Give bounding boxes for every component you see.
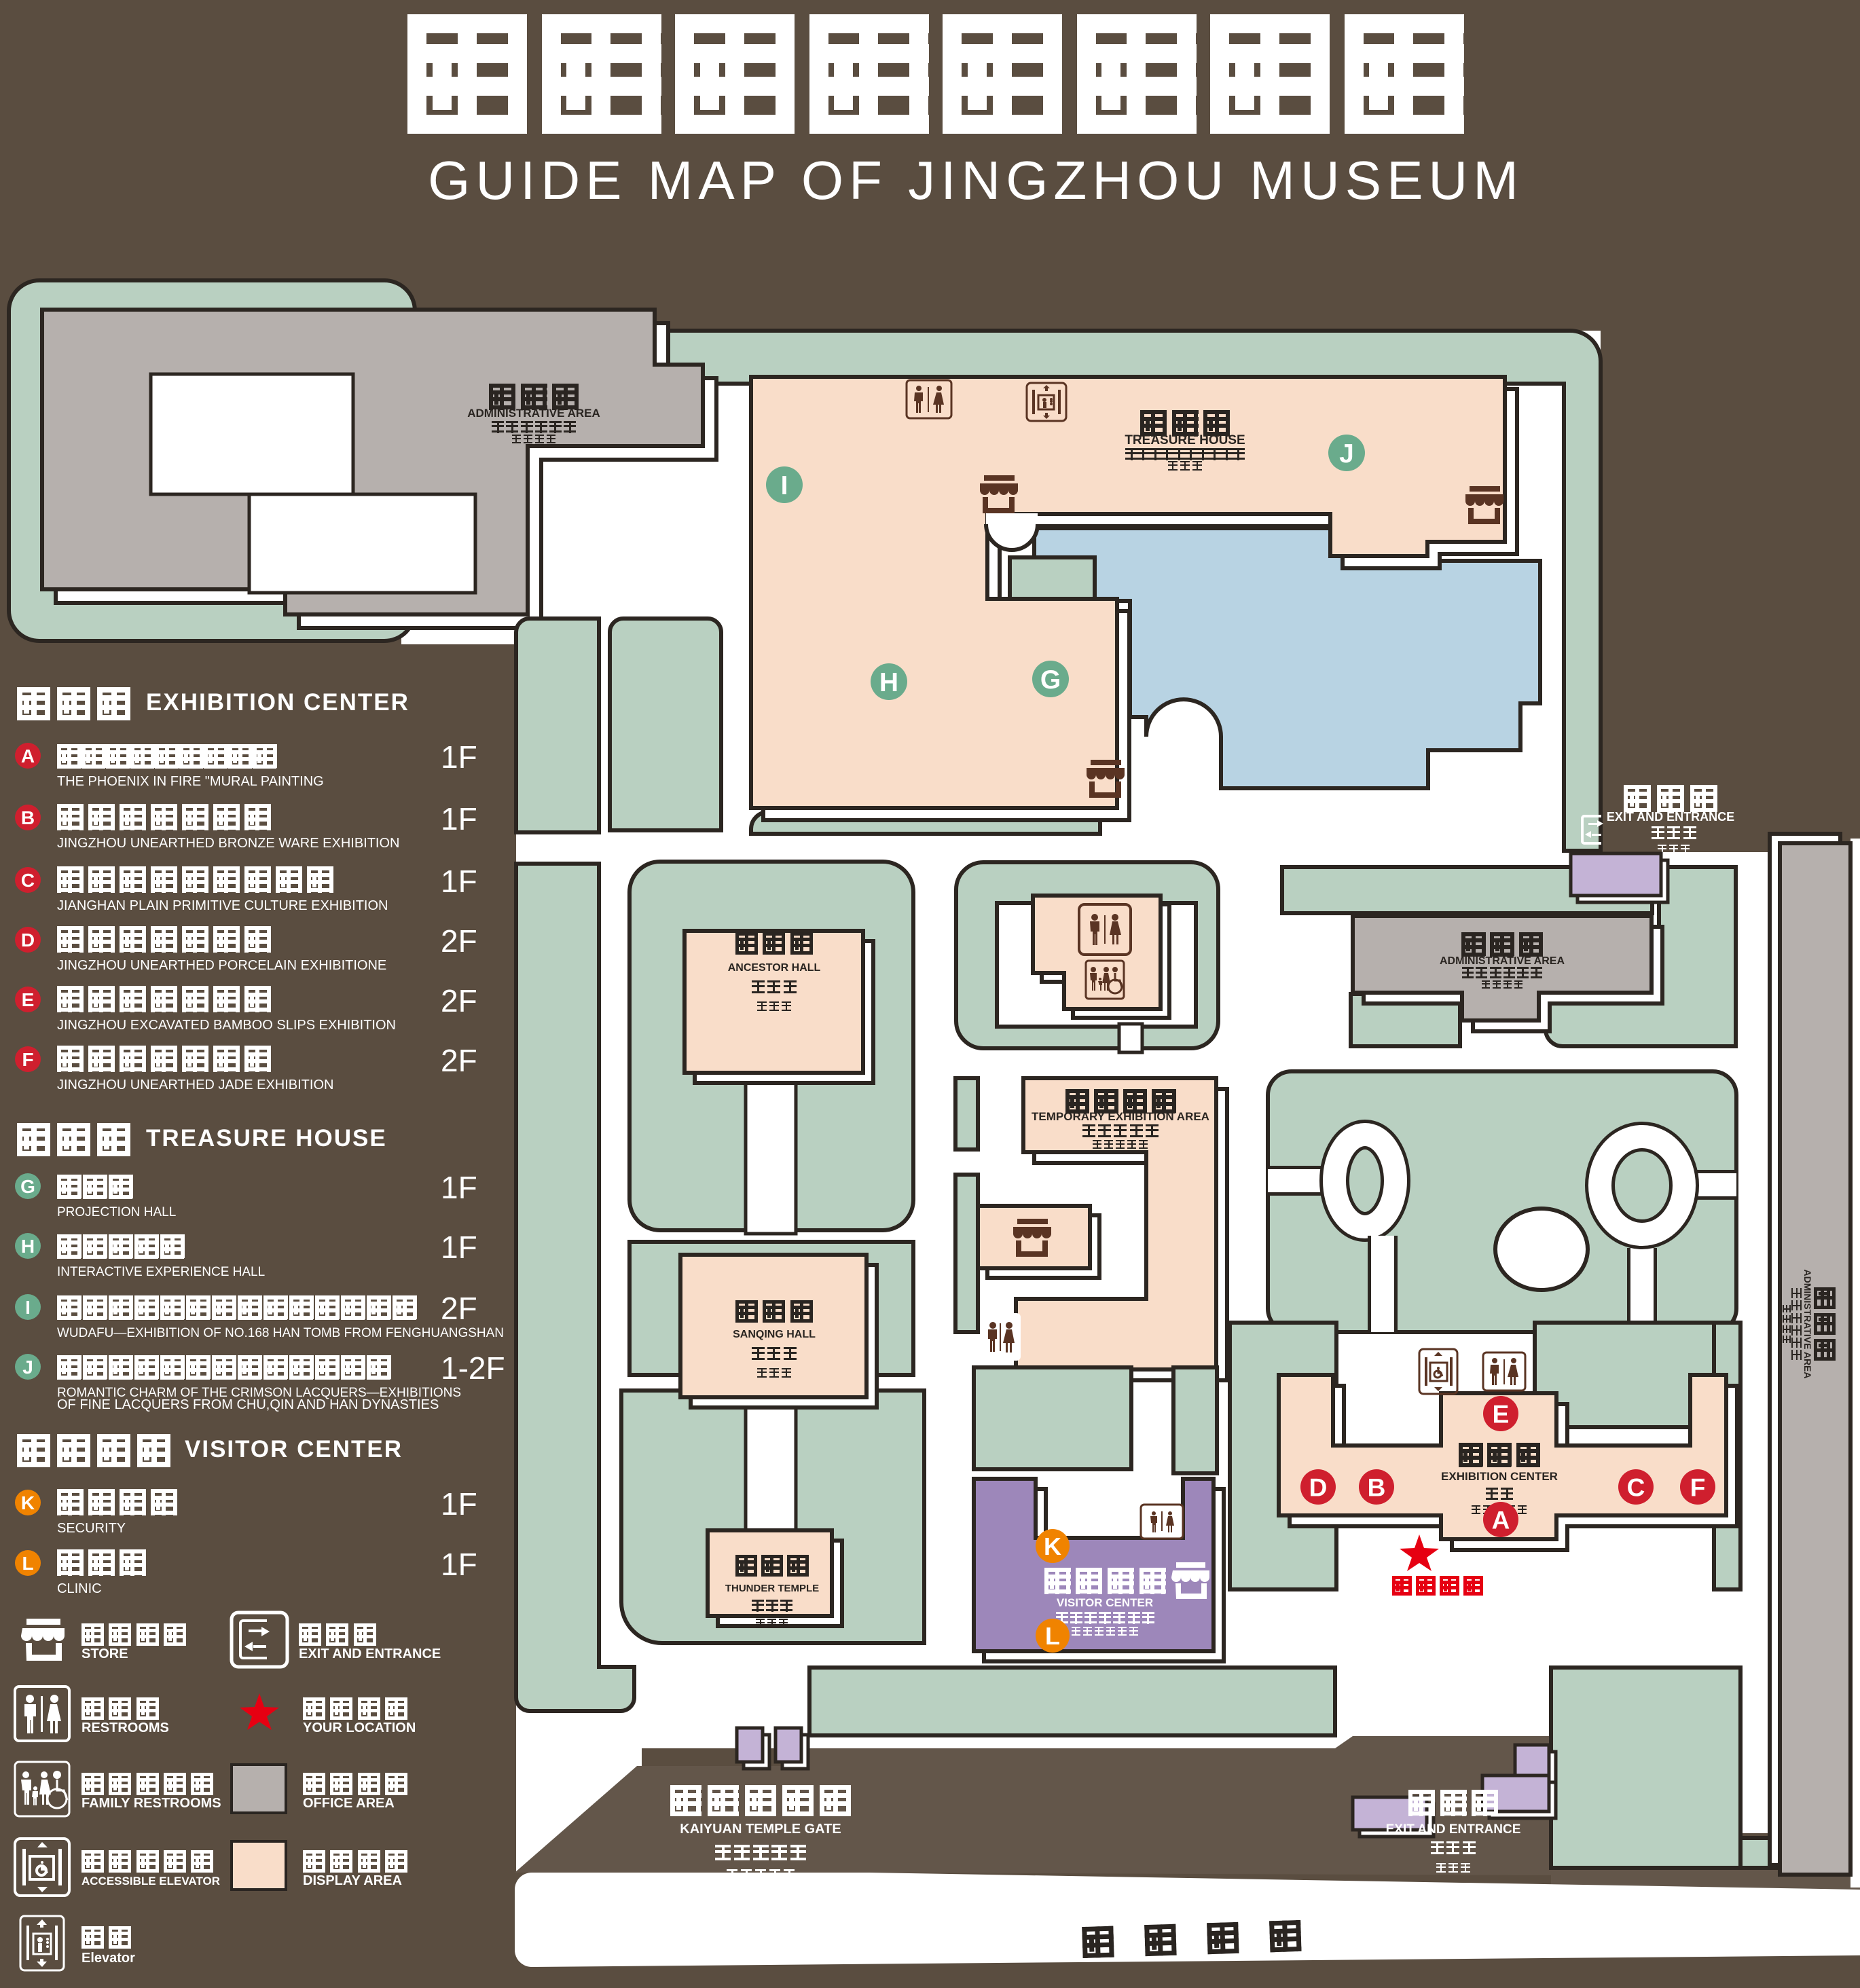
- svg-text:EXIT AND ENTRANCE: EXIT AND ENTRANCE: [1386, 1822, 1521, 1837]
- svg-text:2F: 2F: [441, 1291, 477, 1326]
- svg-text:SECURITY: SECURITY: [57, 1521, 126, 1536]
- svg-text:EXHIBITION CENTER: EXHIBITION CENTER: [146, 689, 409, 716]
- svg-text:JINGZHOU UNEARTHED JADE EXHIBI: JINGZHOU UNEARTHED JADE EXHIBITION: [57, 1078, 333, 1092]
- svg-text:JINGZHOU EXCAVATED BAMBOO SLIP: JINGZHOU EXCAVATED BAMBOO SLIPS EXHIBITI…: [57, 1018, 396, 1033]
- svg-text:C: C: [1627, 1473, 1645, 1501]
- svg-text:H: H: [879, 668, 898, 697]
- svg-text:1F: 1F: [441, 1486, 477, 1522]
- svg-text:G: G: [1040, 665, 1061, 695]
- svg-text:WUDAFU—EXHIBITION OF NO.168 HA: WUDAFU—EXHIBITION OF NO.168 HAN TOMB FRO…: [57, 1326, 504, 1340]
- svg-text:THUNDER TEMPLE: THUNDER TEMPLE: [725, 1583, 819, 1594]
- svg-text:CLINIC: CLINIC: [57, 1581, 102, 1596]
- svg-text:I: I: [781, 471, 788, 500]
- svg-text:GUIDE MAP OF JINGZHOU MUSEUM: GUIDE MAP OF JINGZHOU MUSEUM: [428, 150, 1524, 210]
- svg-text:ADMINISTRATIVE AREA: ADMINISTRATIVE AREA: [467, 407, 600, 420]
- svg-text:OF FINE LACQUERS FROM CHU,QIN: OF FINE LACQUERS FROM CHU,QIN AND HAN DY…: [57, 1397, 439, 1412]
- svg-text:JINGZHOU UNEARTHED BRONZE WARE: JINGZHOU UNEARTHED BRONZE WARE EXHIBITIO…: [57, 836, 399, 851]
- svg-text:G: G: [20, 1176, 35, 1197]
- svg-text:I: I: [25, 1297, 31, 1318]
- svg-text:FAMILY RESTROOMS: FAMILY RESTROOMS: [81, 1796, 221, 1811]
- svg-text:JIANGHAN PLAIN PRIMITIVE CULTU: JIANGHAN PLAIN PRIMITIVE CULTURE EXHIBIT…: [57, 898, 388, 913]
- svg-text:D: D: [21, 929, 35, 951]
- svg-text:ADMINISTRATIVE AREA: ADMINISTRATIVE AREA: [1802, 1270, 1813, 1379]
- svg-text:ACCESSIBLE ELEVATOR: ACCESSIBLE ELEVATOR: [81, 1875, 220, 1888]
- svg-text:A: A: [21, 745, 35, 767]
- svg-text:EXHIBITION CENTER: EXHIBITION CENTER: [1441, 1470, 1558, 1483]
- svg-text:EXIT AND ENTRANCE: EXIT AND ENTRANCE: [1607, 810, 1734, 824]
- svg-text:E: E: [22, 989, 35, 1010]
- svg-text:VISITOR CENTER: VISITOR CENTER: [1057, 1596, 1153, 1609]
- svg-text:JINGZHOU UNEARTHED PORCELAIN E: JINGZHOU UNEARTHED PORCELAIN EXHIBITIONE: [57, 958, 386, 973]
- svg-text:2F: 2F: [441, 923, 477, 959]
- svg-text:KAIYUAN TEMPLE GATE: KAIYUAN TEMPLE GATE: [680, 1822, 841, 1837]
- svg-text:1F: 1F: [441, 1170, 477, 1205]
- svg-text:2F: 2F: [441, 983, 477, 1018]
- svg-text:STORE: STORE: [81, 1646, 128, 1661]
- svg-text:B: B: [1368, 1473, 1386, 1501]
- svg-text:VISITOR CENTER: VISITOR CENTER: [185, 1436, 403, 1462]
- svg-text:TREASURE HOUSE: TREASURE HOUSE: [1125, 433, 1245, 447]
- svg-text:RESTROOMS: RESTROOMS: [81, 1720, 169, 1735]
- svg-text:1-2F: 1-2F: [441, 1350, 505, 1386]
- svg-text:J: J: [22, 1357, 33, 1378]
- svg-text:PROJECTION HALL: PROJECTION HALL: [57, 1205, 176, 1219]
- svg-text:1F: 1F: [441, 739, 477, 775]
- svg-text:Elevator: Elevator: [81, 1951, 135, 1966]
- svg-text:1F: 1F: [441, 801, 477, 836]
- svg-text:YOUR LOCATION: YOUR LOCATION: [303, 1720, 416, 1735]
- svg-text:L: L: [22, 1553, 33, 1574]
- svg-text:A: A: [1492, 1506, 1510, 1534]
- svg-text:EXIT AND ENTRANCE: EXIT AND ENTRANCE: [299, 1646, 441, 1661]
- svg-text:1F: 1F: [441, 864, 477, 899]
- svg-text:SANQING HALL: SANQING HALL: [733, 1329, 816, 1340]
- svg-text:F: F: [1690, 1473, 1706, 1501]
- svg-text:OFFICE AREA: OFFICE AREA: [303, 1796, 395, 1811]
- svg-text:E: E: [1493, 1400, 1510, 1428]
- svg-text:K: K: [1044, 1532, 1061, 1560]
- svg-text:ADMINISTRATIVE AREA: ADMINISTRATIVE AREA: [1440, 955, 1565, 967]
- svg-text:1F: 1F: [441, 1230, 477, 1265]
- svg-text:L: L: [1045, 1622, 1060, 1650]
- svg-text:C: C: [21, 870, 35, 891]
- svg-text:2F: 2F: [441, 1043, 477, 1078]
- svg-text:DISPLAY AREA: DISPLAY AREA: [303, 1873, 402, 1888]
- svg-text:H: H: [21, 1236, 35, 1257]
- svg-text:B: B: [21, 807, 35, 828]
- svg-text:TEMPORARY EXHIBITION AREA: TEMPORARY EXHIBITION AREA: [1032, 1110, 1209, 1123]
- svg-text:F: F: [22, 1049, 33, 1070]
- svg-text:1F: 1F: [441, 1547, 477, 1582]
- svg-text:D: D: [1309, 1473, 1328, 1501]
- svg-text:TREASURE HOUSE: TREASURE HOUSE: [146, 1125, 387, 1152]
- svg-text:INTERACTIVE EXPERIENCE HALL: INTERACTIVE EXPERIENCE HALL: [57, 1265, 265, 1279]
- svg-text:ANCESTOR HALL: ANCESTOR HALL: [728, 962, 821, 974]
- svg-text:THE PHOENIX IN FIRE "MURAL PAI: THE PHOENIX IN FIRE "MURAL PAINTING: [57, 774, 324, 789]
- svg-text:K: K: [21, 1492, 35, 1513]
- svg-text:J: J: [1339, 439, 1354, 468]
